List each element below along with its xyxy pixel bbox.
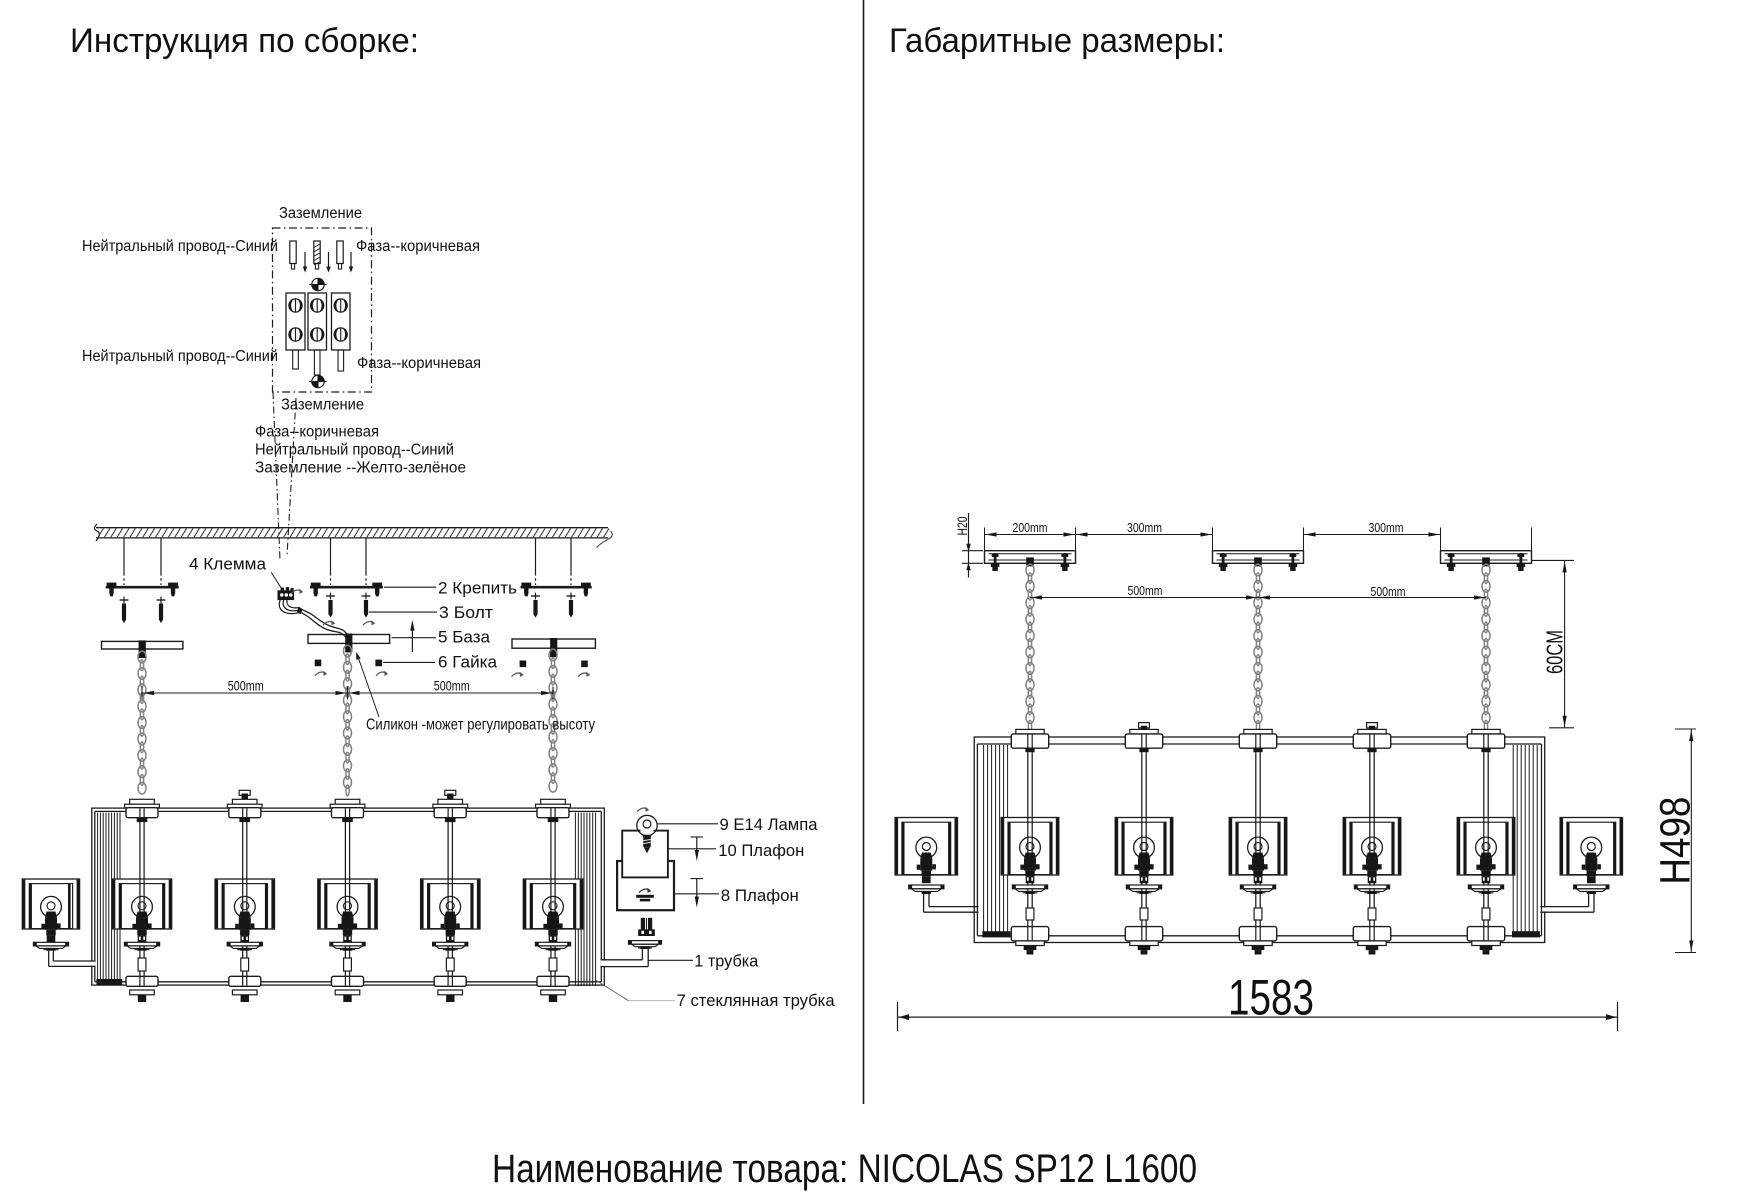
svg-text:Наименование товара: NICOLAS S: Наименование товара: NICOLAS SP12 L1600: [492, 1147, 1197, 1191]
svg-text:6 Гайка: 6 Гайка: [438, 653, 498, 672]
svg-text:Нейтральный провод--Синий: Нейтральный провод--Синий: [255, 442, 454, 459]
svg-text:500mm: 500mm: [434, 678, 470, 693]
svg-text:9 E14 Лампа: 9 E14 Лампа: [720, 815, 819, 834]
svg-text:500mm: 500mm: [1371, 584, 1406, 599]
svg-text:Фаза--коричневая: Фаза--коричневая: [356, 238, 480, 255]
svg-text:Нейтральный провод--Синий: Нейтральный провод--Синий: [82, 348, 278, 365]
svg-text:Фаза--коричневая: Фаза--коричневая: [357, 355, 481, 372]
svg-text:8 Плафон: 8 Плафон: [721, 886, 799, 905]
svg-text:7 стеклянная трубка: 7 стеклянная трубка: [677, 991, 836, 1010]
svg-text:Инструкция по сборке:: Инструкция по сборке:: [70, 22, 419, 60]
svg-text:Габаритные размеры:: Габаритные размеры:: [889, 22, 1225, 60]
svg-text:300mm: 300mm: [1127, 520, 1162, 535]
svg-text:Заземление: Заземление: [281, 397, 364, 414]
svg-text:10 Плафон: 10 Плафон: [718, 841, 804, 860]
svg-text:1583: 1583: [1228, 970, 1314, 1026]
svg-text:3 Болт: 3 Болт: [439, 603, 493, 622]
svg-text:500mm: 500mm: [228, 678, 264, 693]
svg-text:Заземление: Заземление: [279, 205, 362, 222]
svg-text:H20: H20: [955, 517, 970, 536]
svg-text:Фаза--коричневая: Фаза--коричневая: [255, 424, 379, 441]
svg-text:5 База: 5 База: [438, 628, 491, 647]
svg-text:60CM: 60CM: [1542, 630, 1568, 674]
svg-text:4 Клемма: 4 Клемма: [189, 555, 267, 574]
svg-text:Нейтральный провод--Синий: Нейтральный провод--Синий: [82, 238, 278, 255]
svg-text:H498: H498: [1652, 797, 1700, 885]
svg-text:1 трубка: 1 трубка: [694, 952, 759, 971]
svg-text:500mm: 500mm: [1128, 583, 1163, 598]
svg-text:300mm: 300mm: [1369, 520, 1404, 535]
svg-text:2 Крепить: 2 Крепить: [438, 579, 517, 598]
svg-text:Силикон -может регулировать вы: Силикон -может регулировать высоту: [366, 717, 595, 734]
svg-text:200mm: 200mm: [1013, 520, 1048, 535]
svg-text:Заземление --Желто-зелёное: Заземление --Желто-зелёное: [255, 460, 466, 477]
